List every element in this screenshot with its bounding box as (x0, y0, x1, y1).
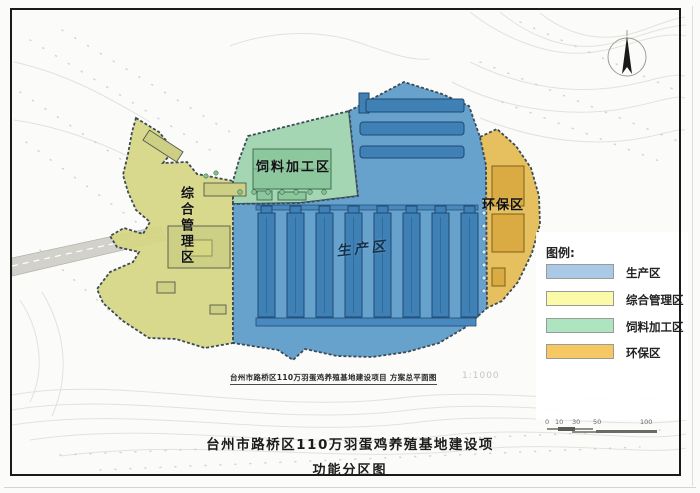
legend-label-management: 综合管理区 (626, 292, 684, 308)
zone-label-environmental: 环保区 (482, 194, 524, 213)
legend-panel: 图例: 生产区 综合管理区 饲料加工区 环保区 (536, 232, 688, 420)
sheet-edge-right (692, 6, 693, 486)
production-zone-upper-buildings (359, 93, 464, 158)
drawing-title-line1: 台州市路桥区110万羽蛋鸡养殖基地建设项 (0, 433, 700, 453)
drawing-title-line2: 功能分区图 (0, 459, 700, 478)
legend-title: 图例: (546, 244, 575, 261)
legend-item-environmental: 环保区 (546, 344, 686, 361)
sheet-edge-bottom (4, 487, 696, 488)
zone-label-management: 综合管理区 (176, 186, 195, 266)
scale-tick-100: 100 (640, 418, 652, 426)
legend-item-feed-processing: 饲料加工区 (546, 318, 686, 335)
legend-item-management: 综合管理区 (546, 291, 686, 308)
plan-scale-note: 1:1000 (462, 371, 500, 381)
legend-label-feed-processing: 饲料加工区 (626, 319, 684, 335)
plan-caption: 台州市路桥区110万羽蛋鸡养殖基地建设项目 方案总平面图 (230, 372, 437, 385)
legend-swatch-production (546, 264, 614, 279)
legend-swatch-management (546, 291, 614, 306)
zone-label-feed-processing: 饲料加工区 (256, 156, 331, 175)
legend-item-production: 生产区 (546, 264, 686, 281)
legend-label-environmental: 环保区 (626, 345, 661, 361)
legend-label-production: 生产区 (626, 265, 661, 281)
title-block: 台州市路桥区110万羽蛋鸡养殖基地建设项 功能分区图 (0, 433, 700, 478)
scale-tick-10: 10 (555, 418, 563, 426)
scale-tick-30: 30 (572, 418, 580, 426)
scale-tick-0: 0 (545, 418, 549, 426)
legend-swatch-environmental (546, 344, 614, 359)
plan-sheet: 饲料加工区 综合管理区 生产区 环保区 台州市路桥区110万羽蛋鸡养殖基地建设项… (0, 0, 700, 493)
legend-swatch-feed-processing (546, 318, 614, 333)
scale-tick-50: 50 (593, 418, 601, 426)
